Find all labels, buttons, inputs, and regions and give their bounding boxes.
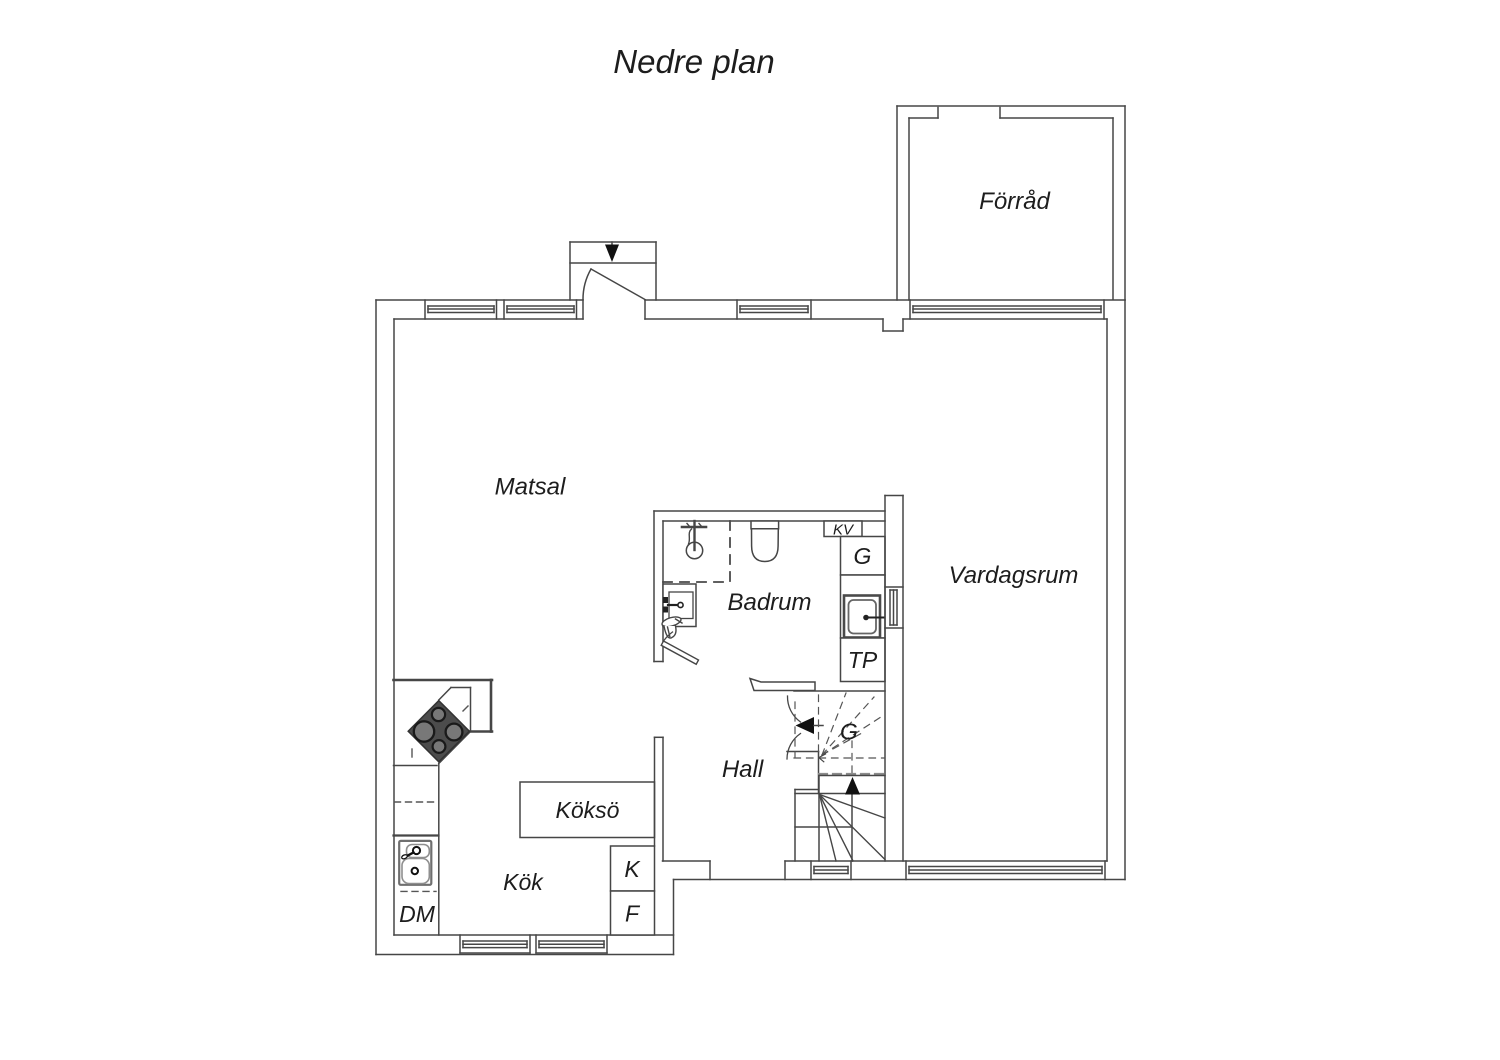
svg-text:G: G [854,543,872,569]
svg-text:Vardagsrum: Vardagsrum [949,562,1079,589]
svg-text:Nedre plan: Nedre plan [613,43,774,80]
svg-text:Kök: Kök [503,869,544,895]
svg-text:Förråd: Förråd [979,188,1050,215]
svg-text:Matsal: Matsal [495,474,566,501]
svg-text:K: K [624,856,641,882]
svg-text:Badrum: Badrum [727,589,811,616]
svg-text:G: G [840,719,858,745]
svg-text:Köksö: Köksö [556,797,620,823]
svg-text:TP: TP [848,647,878,673]
svg-text:Hall: Hall [722,756,764,783]
svg-text:DM: DM [399,901,436,927]
svg-text:F: F [625,901,641,927]
